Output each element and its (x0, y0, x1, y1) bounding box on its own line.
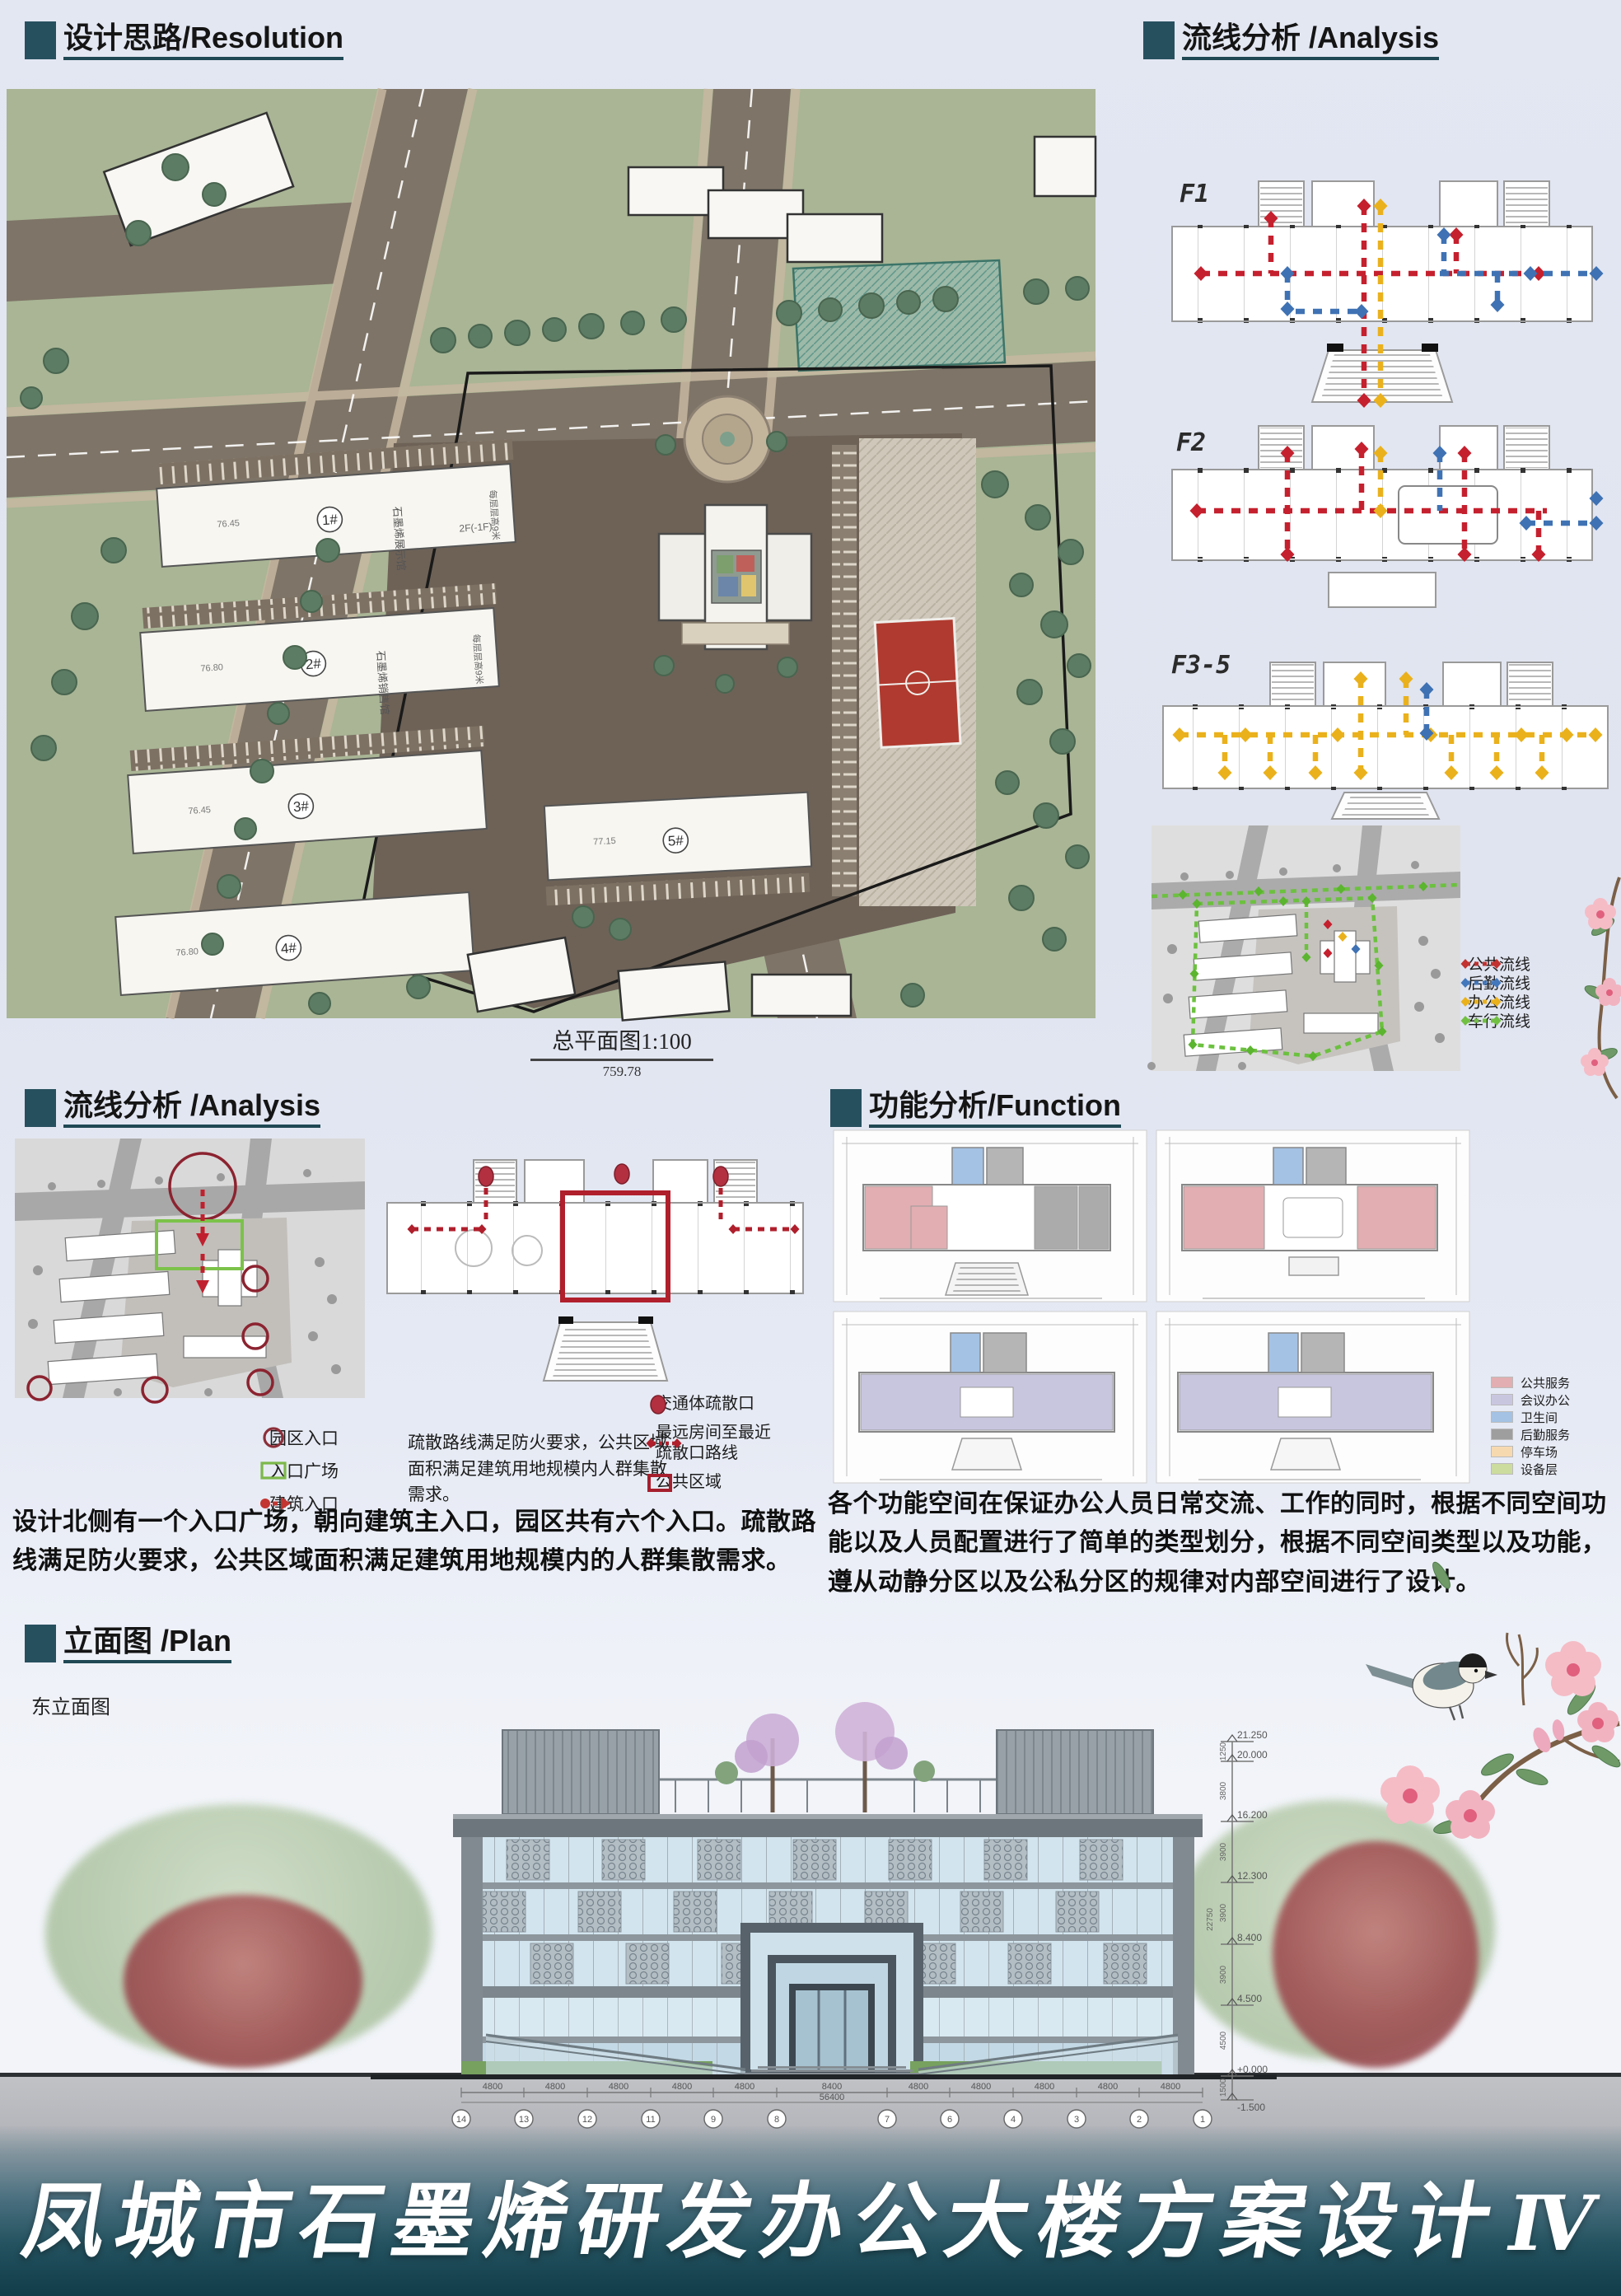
equipment-floor-swatch (1491, 1463, 1513, 1475)
side-dim: 1250 (1219, 1742, 1228, 1761)
f2-circulation-plan (1152, 408, 1617, 624)
svg-text:13: 13 (519, 2115, 529, 2125)
svg-text:3: 3 (1074, 2115, 1079, 2125)
side-dim: 3800 (1219, 1781, 1228, 1800)
grid-dim: 4800 (672, 2082, 692, 2092)
legend-item-public-service: 公共服务 (1491, 1374, 1570, 1391)
section-title-elevation: 立面图 /Plan (63, 1625, 231, 1667)
level-text: 12.300 (1237, 1870, 1268, 1882)
grid-dim: 4800 (909, 2082, 928, 2092)
function-plan-f2 (1153, 1127, 1473, 1305)
grid-dimensions: 4800 4800 4800 4800 4800 8400 4800 4800 … (452, 2082, 1212, 2128)
logistics-service-swatch (1491, 1429, 1513, 1440)
parking-swatch (1491, 1446, 1513, 1457)
building-no: 4# (280, 940, 297, 956)
escape-exit-icon (646, 1394, 670, 1415)
bird (1366, 1653, 1497, 1720)
legend-item-meeting-office: 会议办公 (1491, 1391, 1570, 1408)
svg-text:76.45: 76.45 (188, 805, 211, 816)
legend-item-equipment-floor: 设备层 (1491, 1461, 1570, 1477)
building-no: 5# (667, 833, 684, 849)
public-zone-icon (646, 1472, 674, 1494)
svg-text:9: 9 (711, 2115, 716, 2125)
grid-dim: 4800 (545, 2082, 565, 2092)
basketball-court (875, 619, 960, 748)
circulation-legend: 公共流线 后勤流线 办公流线 车行流线 (1460, 954, 1530, 1030)
master-site-plan-drawing: 1# 石墨烯展示馆 每层层高9米 2F(-1F) 76.45 2# 石墨烯销售馆… (7, 89, 1095, 1018)
escape-note: 疏散路线满足防火要求，公共区域面积满足建筑用地规模内人群集散需求。 (408, 1430, 680, 1508)
board-title-numeral: Ⅳ (1500, 2179, 1601, 2268)
restroom-swatch (1491, 1411, 1513, 1423)
roof-plant-boxes (502, 1730, 1153, 1814)
section-title-resolution: 设计思路/Resolution (63, 21, 343, 63)
floor-label-f1: F1 (1180, 180, 1209, 208)
function-plan-f1 (830, 1127, 1150, 1305)
svg-text:1: 1 (1200, 2115, 1205, 2125)
grid-dim: 4800 (971, 2082, 991, 2092)
office-flow-icon (1460, 995, 1502, 1008)
flow-analysis-body: 设计北侧有一个入口广场，朝向建筑主入口，园区共有六个入口。疏散路线满足防火要求，… (12, 1503, 832, 1581)
side-dim: 3900 (1219, 1903, 1228, 1922)
east-elevation-drawing: 21.250 20.000 16.200 12.300 8.400 4.500 … (371, 1681, 1277, 2130)
escape-legend: 交通体疏散口 最远房间至最近 疏散口路线 公共区域 (646, 1394, 771, 1498)
building-storey-note: 2F(-1F) (459, 521, 493, 535)
legend-item-logistics-service: 后勤服务 (1491, 1426, 1570, 1443)
roof-garden (659, 1702, 997, 1812)
section-header-resolution: 设计思路/Resolution (25, 21, 343, 63)
header-marker-square (25, 1089, 56, 1127)
site-plan-caption: 总平面图1:100 759.78 (461, 1023, 782, 1080)
legend-item-escape-exit: 交通体疏散口 (646, 1394, 771, 1415)
legend-item-vehicle-flow: 车行流线 (1460, 1011, 1530, 1030)
public-service-swatch (1491, 1377, 1513, 1388)
level-text: +0.000 (1237, 2064, 1268, 2075)
svg-text:7: 7 (885, 2115, 890, 2125)
legend-item-office-flow: 办公流线 (1460, 992, 1530, 1011)
grid-dim: 4800 (1098, 2082, 1118, 2092)
grid-dim: 8400 (822, 2082, 842, 2092)
svg-text:11: 11 (646, 2115, 655, 2125)
svg-text:2: 2 (1137, 2115, 1142, 2125)
section-header-flow-right: 流线分析 /Analysis (1143, 21, 1439, 63)
tree-red-right (1273, 1841, 1479, 2068)
legend-item-public-zone: 公共区域 (646, 1472, 771, 1493)
flower-branch-decoration (1555, 869, 1621, 1100)
section-header-elevation: 立面图 /Plan (25, 1625, 231, 1667)
svg-text:77.15: 77.15 (593, 836, 616, 847)
header-marker-square (830, 1089, 862, 1127)
building-no: 3# (292, 798, 310, 815)
grid-dim: 4800 (735, 2082, 754, 2092)
function-plan-f4-5 (1153, 1308, 1473, 1486)
svg-text:6: 6 (947, 2115, 952, 2125)
level-text: 20.000 (1237, 1749, 1268, 1761)
escape-route-plan (375, 1137, 815, 1384)
level-dimensions: 21.250 20.000 16.200 12.300 8.400 4.500 … (1206, 1729, 1268, 2113)
f1-circulation-plan (1152, 157, 1617, 404)
side-dim: 3900 (1219, 1965, 1228, 1984)
grid-dim: 4800 (1035, 2082, 1054, 2092)
facade (461, 1837, 1194, 2075)
svg-text:14: 14 (456, 2115, 466, 2125)
side-dim: 3900 (1219, 1842, 1228, 1861)
side-dim-total: 22750 (1206, 1908, 1215, 1931)
circulation-site-map (1152, 825, 1460, 1071)
vehicle-flow-icon (1460, 1014, 1502, 1027)
floor-label-f2: F2 (1176, 428, 1206, 457)
logistics-flow-icon (1460, 976, 1502, 989)
grid-dim-total: 56400 (820, 2093, 845, 2102)
site-plan-caption-value: 759.78 (461, 1064, 782, 1080)
board-title: 凤城市石墨烯研发办公大楼方案设计Ⅳ (0, 2154, 1621, 2274)
level-text: 4.500 (1237, 1993, 1262, 2004)
section-title-flow-left: 流线分析 /Analysis (63, 1089, 320, 1131)
bird-flower-decoration (1318, 1600, 1621, 1847)
presentation-board: 设计思路/Resolution (0, 0, 1621, 2296)
level-text: 8.400 (1237, 1932, 1262, 1943)
legend-item-parking: 停车场 (1491, 1443, 1570, 1460)
function-plan-f3 (830, 1308, 1150, 1486)
side-dim: 4500 (1219, 2031, 1228, 2050)
entrance-analysis-map (15, 1139, 365, 1398)
park-entrance-icon (259, 1425, 287, 1450)
function-legend: 公共服务 会议办公 卫生间 后勤服务 停车场 设备层 (1491, 1374, 1570, 1478)
grid-dim: 4800 (609, 2082, 628, 2092)
elevation-sublabel: 东立面图 (31, 1690, 110, 1719)
section-header-function: 功能分析/Function (830, 1089, 1121, 1131)
escape-route-icon (646, 1436, 682, 1451)
level-text: -1.500 (1237, 2102, 1265, 2113)
level-text: 16.200 (1237, 1809, 1268, 1821)
svg-text:8: 8 (774, 2115, 779, 2125)
svg-text:76.80: 76.80 (175, 947, 199, 958)
board-title-text: 凤城市石墨烯研发办公大楼方案设计 (16, 2177, 1508, 2268)
svg-text:12: 12 (582, 2115, 592, 2125)
header-marker-square (25, 1625, 56, 1662)
function-analysis-body: 各个功能空间在保证办公人员日常交流、工作的同时，根据不同空间功能以及人员配置进行… (828, 1485, 1619, 1602)
meeting-office-swatch (1491, 1394, 1513, 1405)
header-marker-square (25, 21, 56, 59)
section-header-flow-left: 流线分析 /Analysis (25, 1089, 320, 1131)
floor-label-f3-5: F3-5 (1171, 651, 1231, 680)
svg-text:4: 4 (1011, 2115, 1016, 2125)
legend-item-escape-route: 最远房间至最近 疏散口路线 (646, 1423, 771, 1464)
pink-flowers (1380, 1641, 1619, 1839)
legend-item-park-entrance: 园区入口 (259, 1424, 339, 1452)
public-flow-icon (1460, 957, 1502, 970)
svg-text:76.80: 76.80 (200, 662, 223, 674)
section-title-flow-right: 流线分析 /Analysis (1182, 21, 1439, 63)
building-no: 2# (305, 656, 322, 672)
header-marker-square (1143, 21, 1175, 59)
legend-item-logistics-flow: 后勤流线 (1460, 973, 1530, 992)
section-title-function: 功能分析/Function (869, 1089, 1121, 1131)
grid-dim: 4800 (1161, 2082, 1180, 2092)
tree-red-left (124, 1895, 362, 2068)
legend-item-public-flow: 公共流线 (1460, 954, 1530, 973)
entry-plaza-icon (259, 1458, 287, 1483)
building-no: 1# (321, 512, 339, 528)
site-plan-caption-title: 总平面图1:100 (530, 1023, 713, 1061)
side-dim: 1500 (1219, 2078, 1228, 2097)
legend-item-entry-plaza: 入口广场 (259, 1457, 339, 1485)
level-text: 21.250 (1237, 1729, 1268, 1741)
legend-item-restroom: 卫生间 (1491, 1409, 1570, 1425)
grid-dim: 4800 (483, 2082, 502, 2092)
svg-text:76.45: 76.45 (217, 518, 240, 530)
